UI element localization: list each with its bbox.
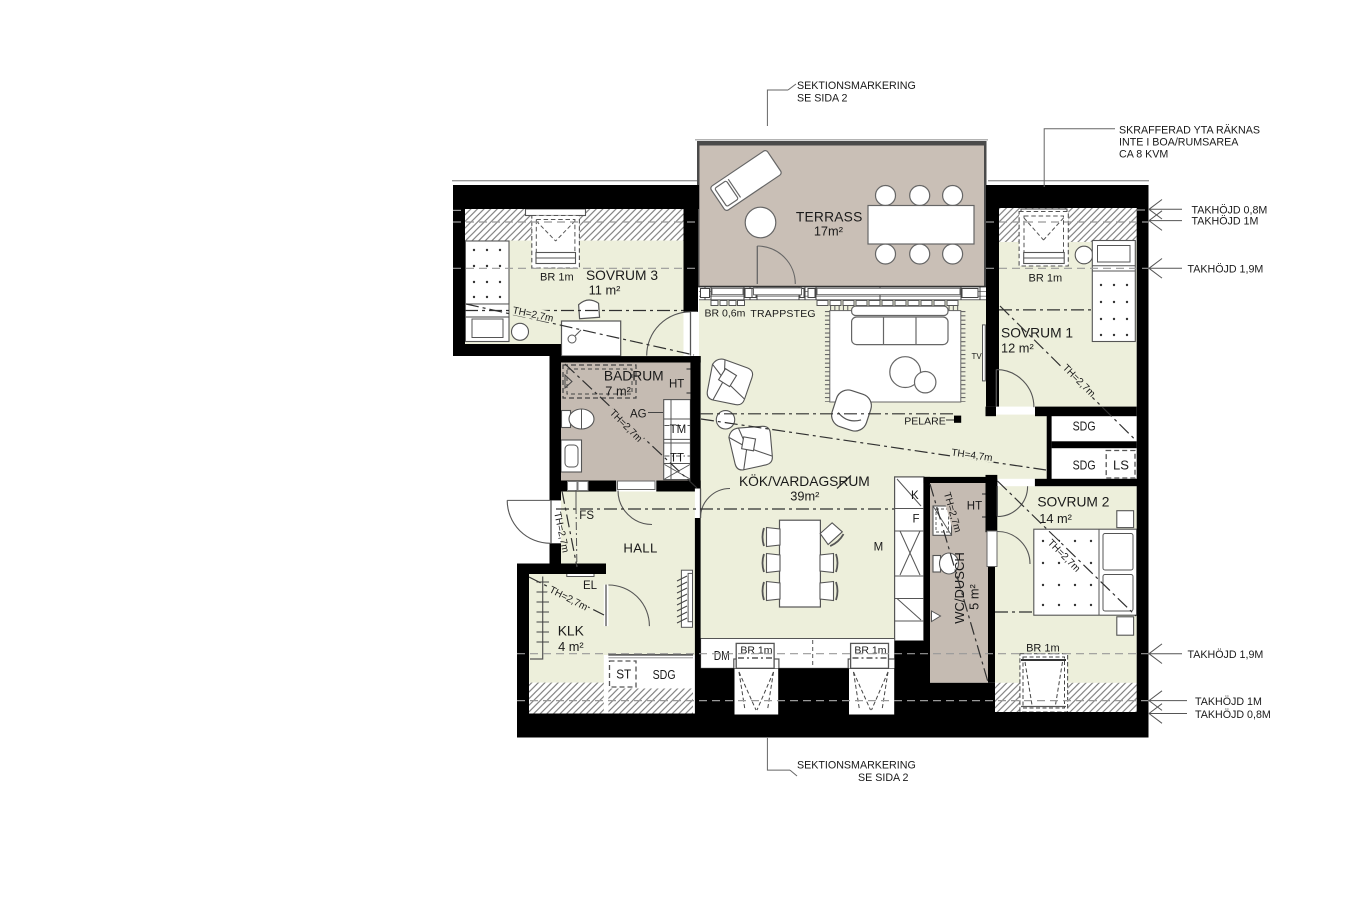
svg-text:K: K (911, 490, 919, 502)
svg-text:5 m²: 5 m² (967, 583, 982, 609)
svg-text:SDG: SDG (1073, 419, 1096, 434)
svg-text:BR 1m: BR 1m (740, 644, 772, 656)
svg-text:TERRASS: TERRASS (796, 209, 863, 224)
svg-text:CA 8 KVM: CA 8 KVM (1119, 149, 1168, 161)
svg-text:TAKHÖJD 0,8M: TAKHÖJD 0,8M (1195, 709, 1271, 721)
svg-text:BR 1m: BR 1m (1026, 643, 1060, 655)
svg-text:TAKHÖJD 1,9M: TAKHÖJD 1,9M (1188, 264, 1264, 276)
svg-text:HT: HT (669, 378, 684, 390)
svg-text:FS: FS (579, 510, 594, 522)
svg-text:39m²: 39m² (790, 489, 820, 504)
svg-text:KLK: KLK (558, 624, 585, 639)
svg-text:DM: DM (714, 649, 730, 663)
svg-text:SOVRUM 2: SOVRUM 2 (1037, 495, 1109, 510)
svg-text:BR 1m: BR 1m (540, 272, 574, 284)
svg-text:TRAPPSTEG: TRAPPSTEG (750, 308, 815, 320)
svg-text:TV: TV (972, 352, 983, 361)
svg-text:4 m²: 4 m² (558, 639, 584, 654)
svg-text:12 m²: 12 m² (1001, 341, 1034, 356)
svg-text:BADRUM: BADRUM (604, 369, 664, 384)
svg-text:TM: TM (670, 424, 687, 436)
svg-text:TAKHÖJD 1,9M: TAKHÖJD 1,9M (1188, 649, 1264, 661)
svg-text:EL: EL (583, 580, 598, 592)
svg-text:INTE I BOA/RUMSAREA: INTE I BOA/RUMSAREA (1119, 137, 1239, 149)
svg-text:SEKTIONSMARKERING: SEKTIONSMARKERING (797, 760, 916, 772)
svg-text:BR 0,6m: BR 0,6m (705, 307, 746, 319)
svg-text:14 m²: 14 m² (1039, 511, 1072, 526)
svg-text:SDG: SDG (1073, 458, 1096, 473)
svg-text:SKRAFFERAD YTA RÄKNAS: SKRAFFERAD YTA RÄKNAS (1119, 125, 1260, 137)
svg-text:SDG: SDG (653, 667, 676, 682)
svg-text:PELARE: PELARE (904, 415, 945, 427)
svg-text:LS: LS (1113, 458, 1129, 473)
svg-text:M: M (874, 542, 884, 554)
svg-text:SEKTIONSMARKERING: SEKTIONSMARKERING (797, 80, 916, 92)
svg-text:7 m²: 7 m² (605, 384, 631, 399)
svg-text:TAKHÖJD 1M: TAKHÖJD 1M (1192, 216, 1259, 228)
svg-text:SOVRUM 1: SOVRUM 1 (1001, 326, 1073, 341)
svg-text:BR 1m: BR 1m (1029, 273, 1063, 285)
svg-text:AG: AG (630, 408, 647, 420)
svg-text:SE SIDA 2: SE SIDA 2 (797, 93, 848, 105)
svg-text:F: F (913, 514, 920, 526)
svg-text:BR 1m: BR 1m (854, 644, 886, 656)
svg-text:TT: TT (670, 453, 684, 465)
svg-text:TAKHÖJD 1M: TAKHÖJD 1M (1195, 696, 1262, 708)
svg-text:HALL: HALL (623, 541, 657, 556)
svg-text:ST: ST (616, 667, 631, 682)
svg-text:KÖK/VARDAGSRUM: KÖK/VARDAGSRUM (739, 472, 870, 489)
svg-text:17m²: 17m² (814, 224, 844, 239)
svg-text:SE SIDA 2: SE SIDA 2 (858, 772, 909, 784)
svg-text:HT: HT (967, 501, 982, 513)
svg-text:SOVRUM 3: SOVRUM 3 (586, 268, 658, 283)
svg-text:WC/DUSCH: WC/DUSCH (952, 552, 967, 624)
svg-text:11 m²: 11 m² (589, 283, 621, 298)
